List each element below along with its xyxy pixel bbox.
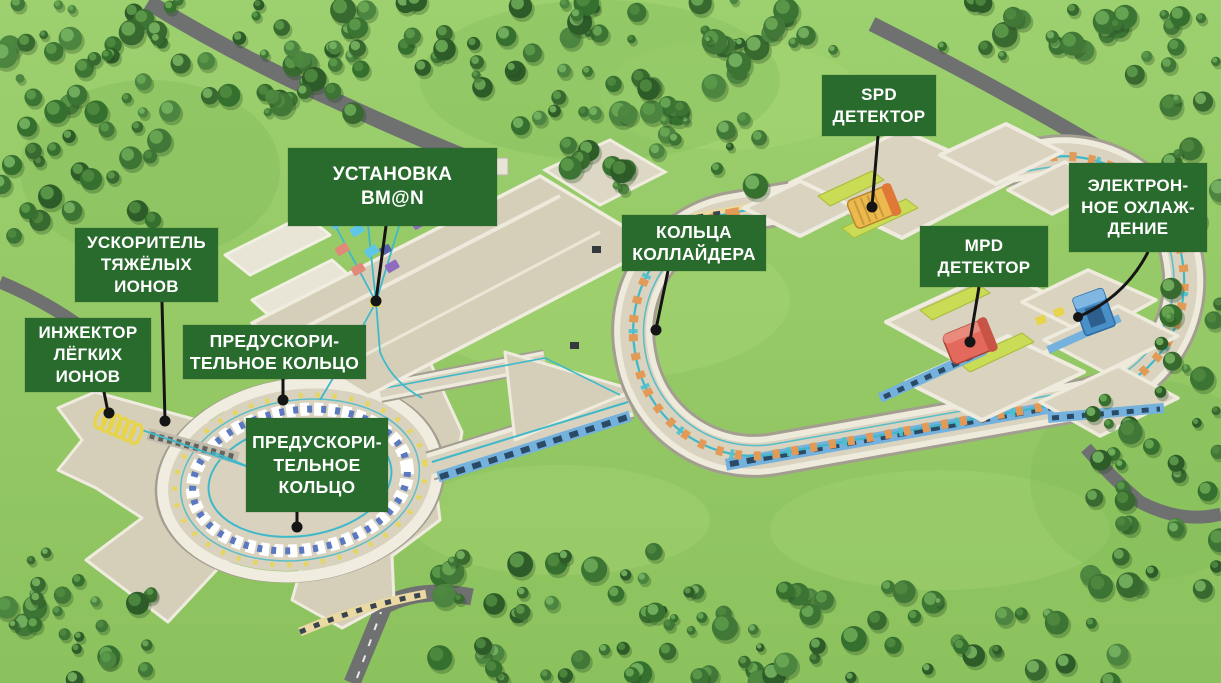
pointer-dot-spd xyxy=(867,202,878,213)
label-collider-rings: КОЛЬЦА КОЛЛАЙДЕРА xyxy=(622,215,766,271)
label-booster-ring-b: ПРЕДУСКОРИ- ТЕЛЬНОЕ КОЛЬЦО xyxy=(246,418,388,512)
pointer-dot-ecooling xyxy=(1073,312,1083,322)
pointer-dot-booster-b xyxy=(292,522,303,533)
label-electron-cooling: ЭЛЕКТРОН- НОЕ ОХЛАЖ- ДЕНИЕ xyxy=(1069,163,1207,252)
label-mpd-detector: MPD ДЕТЕКТОР xyxy=(920,226,1048,287)
pointer-dot-injector xyxy=(104,408,115,419)
label-booster-ring-a: ПРЕДУСКОРИ- ТЕЛЬНОЕ КОЛЬЦО xyxy=(183,325,366,379)
nica-complex-diagram: УСТАНОВКА BM@N SPD ДЕТЕКТОР ЭЛЕКТРОН- НО… xyxy=(0,0,1221,683)
pointer-dot-collider xyxy=(651,325,662,336)
label-bmn-facility: УСТАНОВКА BM@N xyxy=(288,148,497,226)
pointer-dot-booster-a xyxy=(278,395,289,406)
label-heavy-ion-accelerator: УСКОРИТЕЛЬ ТЯЖЁЛЫХ ИОНОВ xyxy=(75,228,218,302)
label-spd-detector: SPD ДЕТЕКТОР xyxy=(822,75,936,136)
pointer-dot-heavy-ion xyxy=(160,416,171,427)
pointer-dot-mpd xyxy=(965,337,976,348)
label-light-ion-injector: ИНЖЕКТОР ЛЁГКИХ ИОНОВ xyxy=(25,318,151,392)
pointer-dot-bmn xyxy=(371,296,382,307)
